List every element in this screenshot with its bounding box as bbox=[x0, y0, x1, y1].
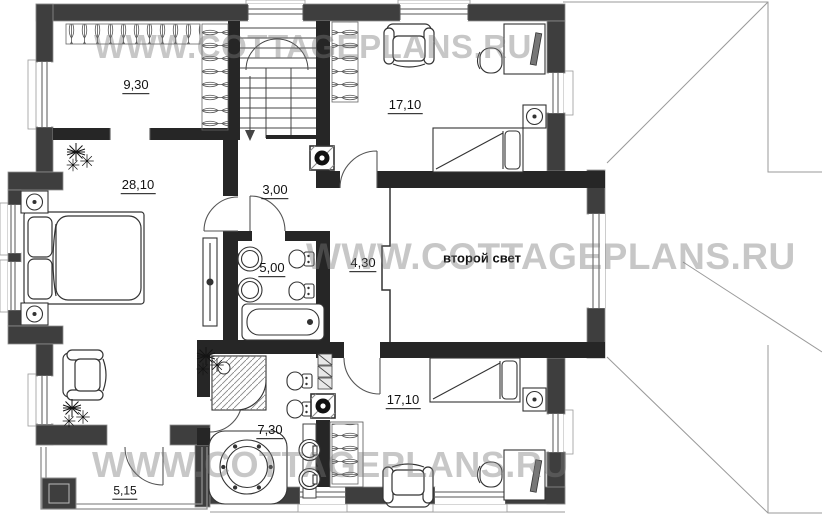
nightstand-icon bbox=[523, 105, 546, 128]
room-area-label-bedroom-bottom: 17,10 bbox=[386, 393, 421, 409]
room-area-label-bathroom-lower: 7,30 bbox=[256, 423, 283, 439]
vent-icon bbox=[311, 394, 335, 418]
room-area-label-bedroom-top: 17,10 bbox=[388, 98, 423, 114]
watermark-text: WWW.COTTAGEPLANS.RU bbox=[306, 236, 796, 278]
single-bed-icon bbox=[433, 128, 523, 172]
room-area-label-master-bedroom: 28,10 bbox=[121, 178, 156, 194]
sink-icon bbox=[238, 278, 262, 302]
toilet-icon bbox=[287, 372, 312, 390]
room-area-label-hall: 3,00 bbox=[261, 183, 288, 199]
watermark-text: WWW.COTTAGEPLANS.RU bbox=[92, 444, 569, 486]
shower-icon bbox=[212, 356, 266, 410]
plant-icon bbox=[67, 143, 94, 171]
bathtub-icon bbox=[242, 304, 324, 340]
dresser-icon bbox=[203, 238, 217, 326]
armchair-icon bbox=[63, 350, 106, 400]
room-area-label-bathroom-upper: 5,00 bbox=[258, 261, 285, 277]
floor-plan-page: 9,30 28,10 3,00 5,00 4,30 второй свет 17… bbox=[0, 0, 822, 520]
toilet-icon bbox=[287, 400, 312, 418]
chimney-flue-icon bbox=[318, 354, 332, 389]
watermark-text: WWW.COTTAGEPLANS.RU bbox=[94, 28, 532, 66]
room-area-label-wardrobe: 9,30 bbox=[122, 78, 149, 94]
plant-icon bbox=[63, 399, 90, 427]
single-bed-icon bbox=[430, 358, 520, 402]
nightstand-icon bbox=[21, 303, 48, 325]
room-area-label-balcony: 5,15 bbox=[112, 485, 137, 500]
toilet-icon bbox=[289, 282, 314, 300]
balcony-column bbox=[42, 478, 76, 509]
double-bed-icon bbox=[24, 212, 144, 304]
vent-icon bbox=[310, 146, 334, 170]
nightstand-icon bbox=[523, 388, 546, 411]
nightstand-icon bbox=[21, 191, 48, 213]
